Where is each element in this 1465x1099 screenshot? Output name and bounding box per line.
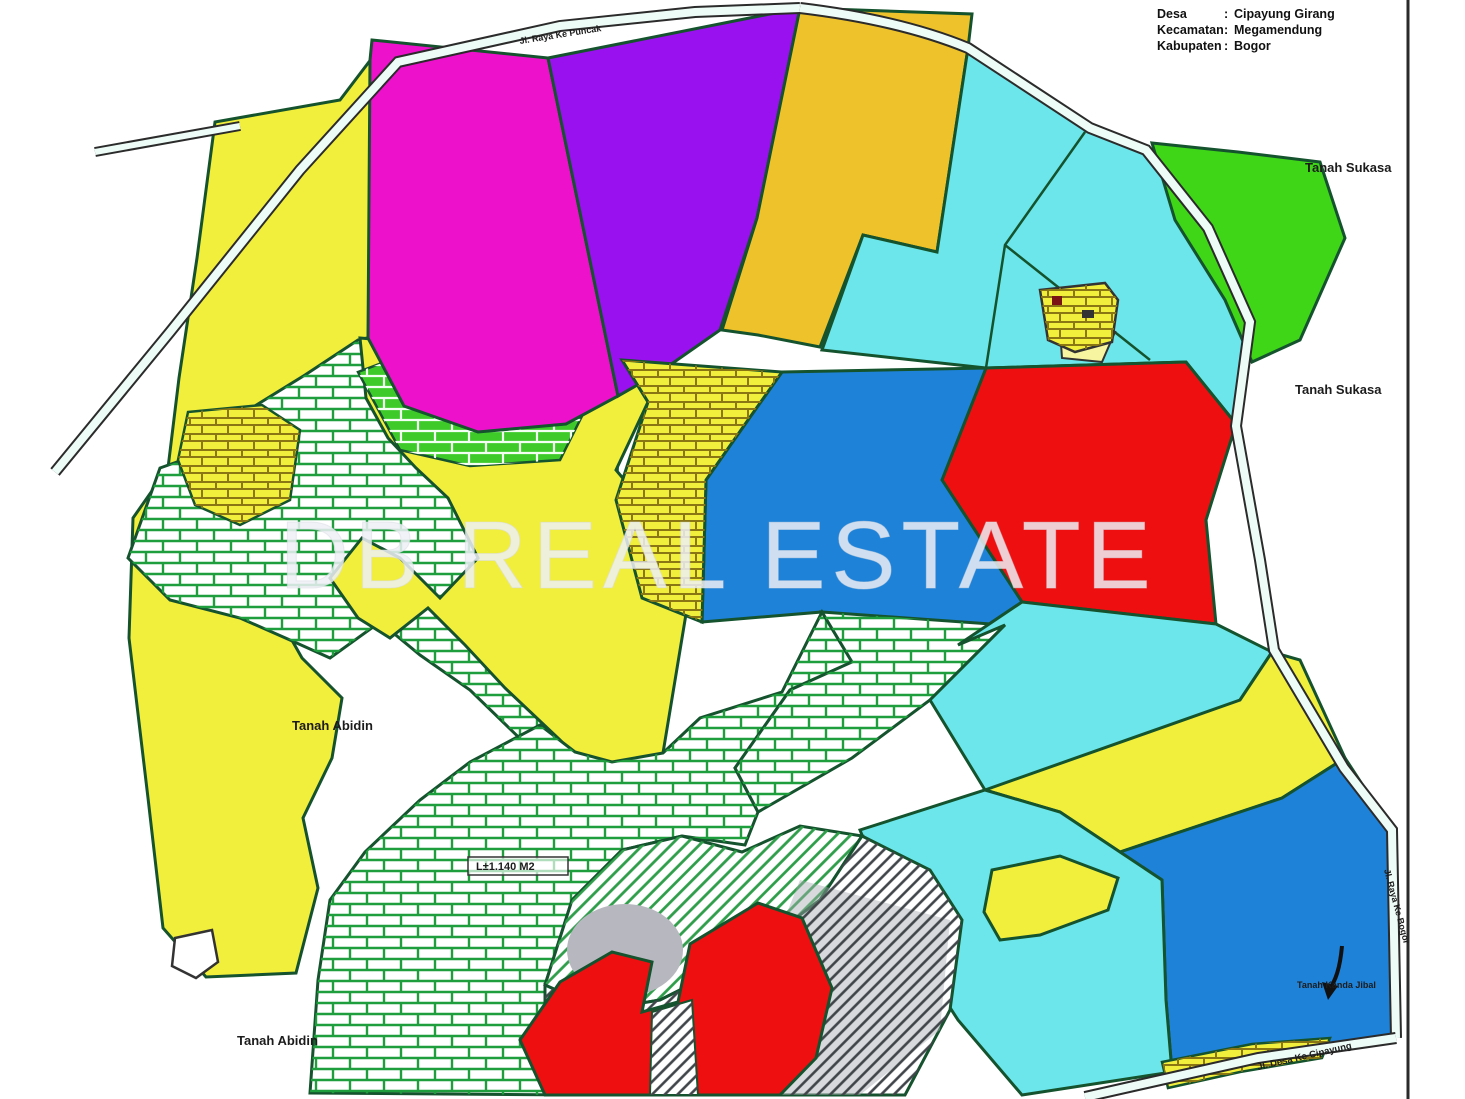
label-tanah-sukasa-mid: Tanah Sukasa [1295,382,1382,397]
legend-label-desa: Desa [1157,7,1188,21]
area-note-text: L±1.140 M2 [476,861,535,873]
legend-sep: : [1224,23,1228,37]
label-tanah-sukasa-top: Tanah Sukasa [1305,160,1392,175]
watermark: DB REAL ESTATE [279,502,1156,609]
legend-value-desa: Cipayung Girang [1234,7,1335,21]
legend-sep: : [1224,7,1228,21]
area-note: L±1.140 M2 [468,857,568,875]
parcel-map-svg: Desa : Cipayung Girang Kecamatan : Megam… [0,0,1465,1099]
map-sheet: Desa : Cipayung Girang Kecamatan : Megam… [0,0,1465,1099]
legend-sep: : [1224,39,1228,53]
legend-value-kecamatan: Megamendung [1234,23,1322,37]
legend-label-kecamatan: Kecamatan [1157,23,1224,37]
legend-value-kabupaten: Bogor [1234,39,1271,53]
hatch-slot [650,1000,698,1095]
label-tanah-kanda: Tanah Kanda Jibal [1297,980,1376,990]
label-tanah-abidin-bottom: Tanah Abidin [237,1033,318,1048]
label-tanah-abidin-mid: Tanah Abidin [292,718,373,733]
legend-label-kabupaten: Kabupaten [1157,39,1222,53]
